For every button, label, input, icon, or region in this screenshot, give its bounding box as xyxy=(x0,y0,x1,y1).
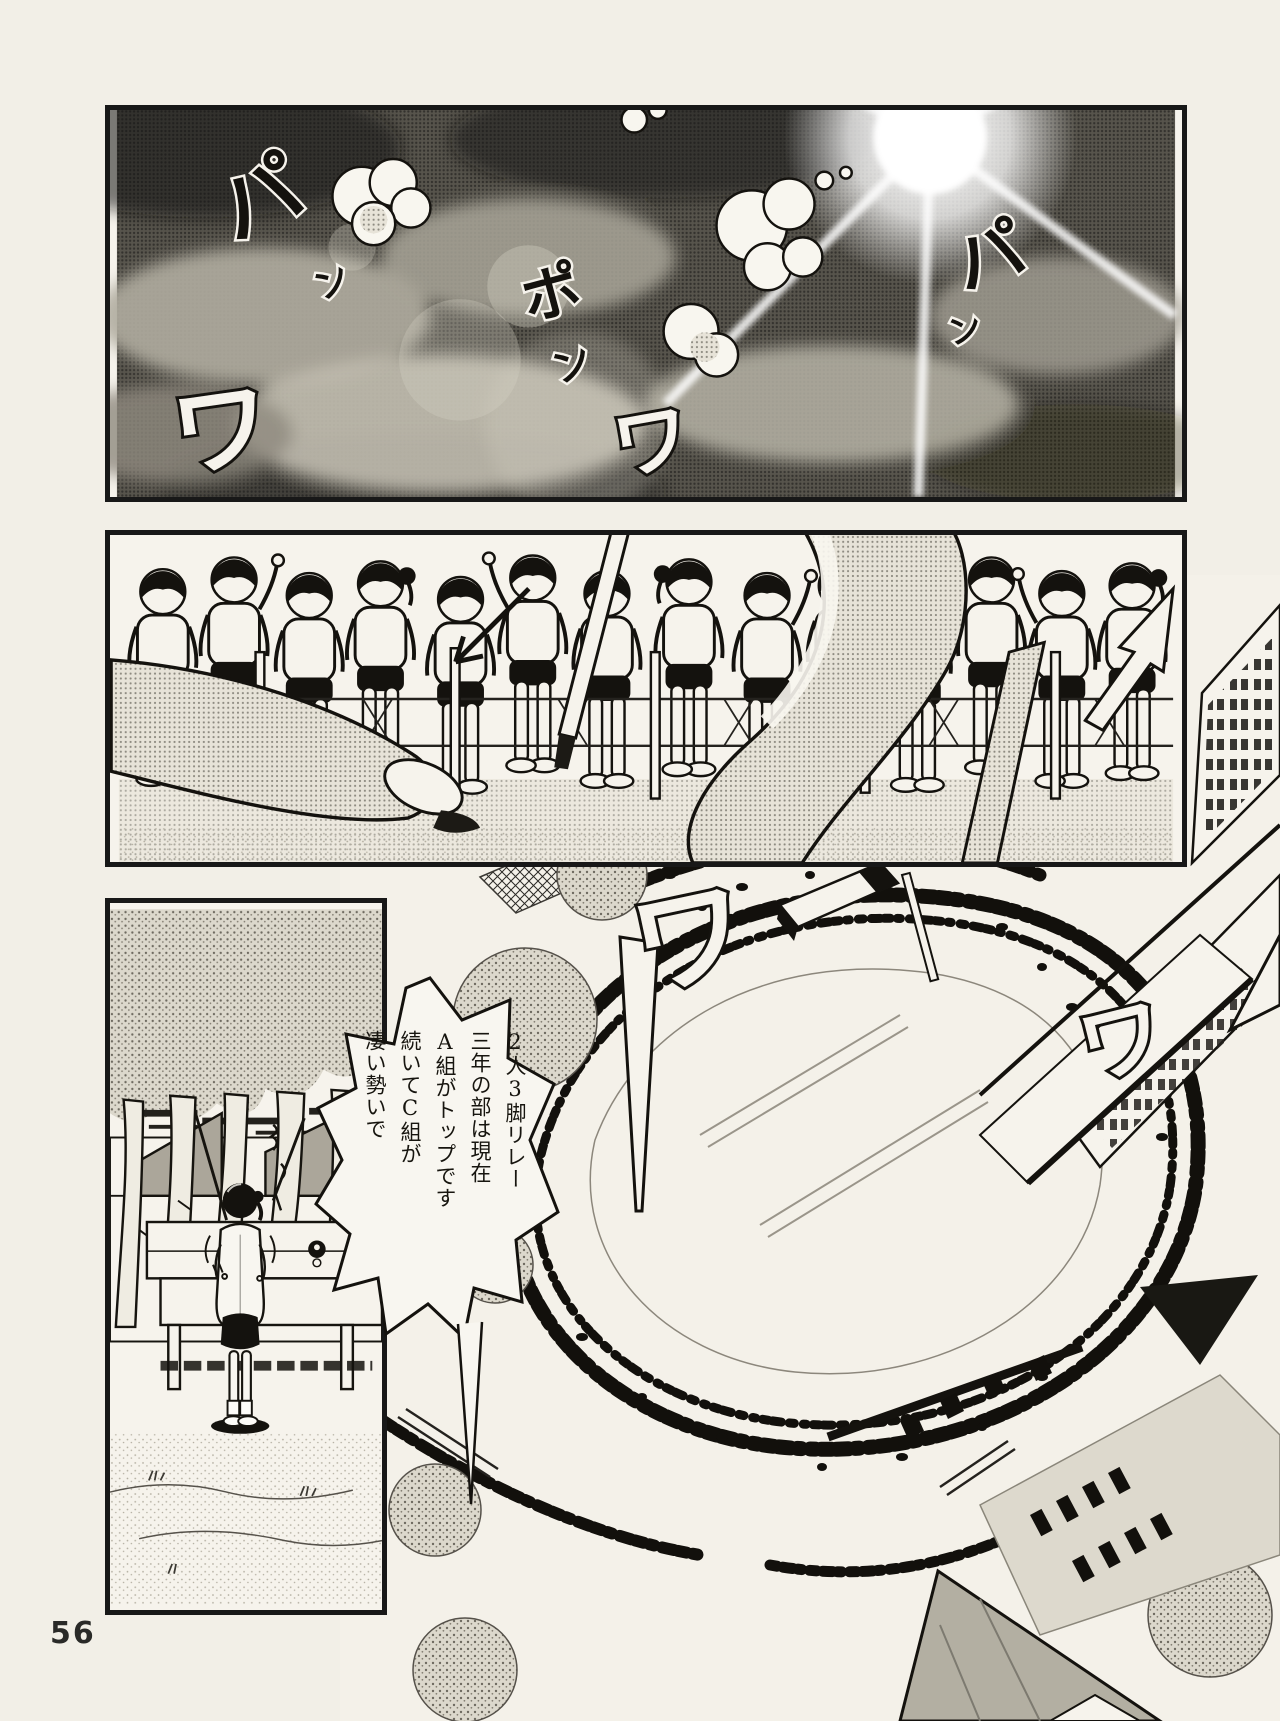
announcement-text: 2人3脚リレー 三年の部は現在 A組がトップです 続いてC組が 凄い勢いで xyxy=(352,1030,532,1330)
announcement-line: 続いてC組が xyxy=(392,1030,427,1330)
page-number: 56 xyxy=(50,1616,96,1651)
manga-page: ワ ワ xyxy=(0,0,1280,1721)
bubble-spike xyxy=(458,1322,482,1504)
girl-bloomers xyxy=(221,1313,260,1349)
panel-crowd xyxy=(105,530,1187,867)
announcement-line: A組がトップです xyxy=(427,1030,462,1330)
panel-sky: パ ン ポ ン パ ン ワ ワ xyxy=(105,105,1187,502)
announcement-line: 三年の部は現在 xyxy=(462,1030,497,1330)
crowd-art xyxy=(110,535,1182,862)
sfx-wa-sky-left: ワ xyxy=(165,368,278,495)
girl-hair xyxy=(223,1183,258,1218)
sky-art: パ ン ポ ン パ ン ワ ワ xyxy=(110,110,1182,497)
sfx-wa-sky-right: ワ xyxy=(606,392,697,493)
announcement-line: 2人3脚リレー xyxy=(497,1030,532,1330)
announcement-line: 凄い勢いで xyxy=(357,1030,392,1330)
